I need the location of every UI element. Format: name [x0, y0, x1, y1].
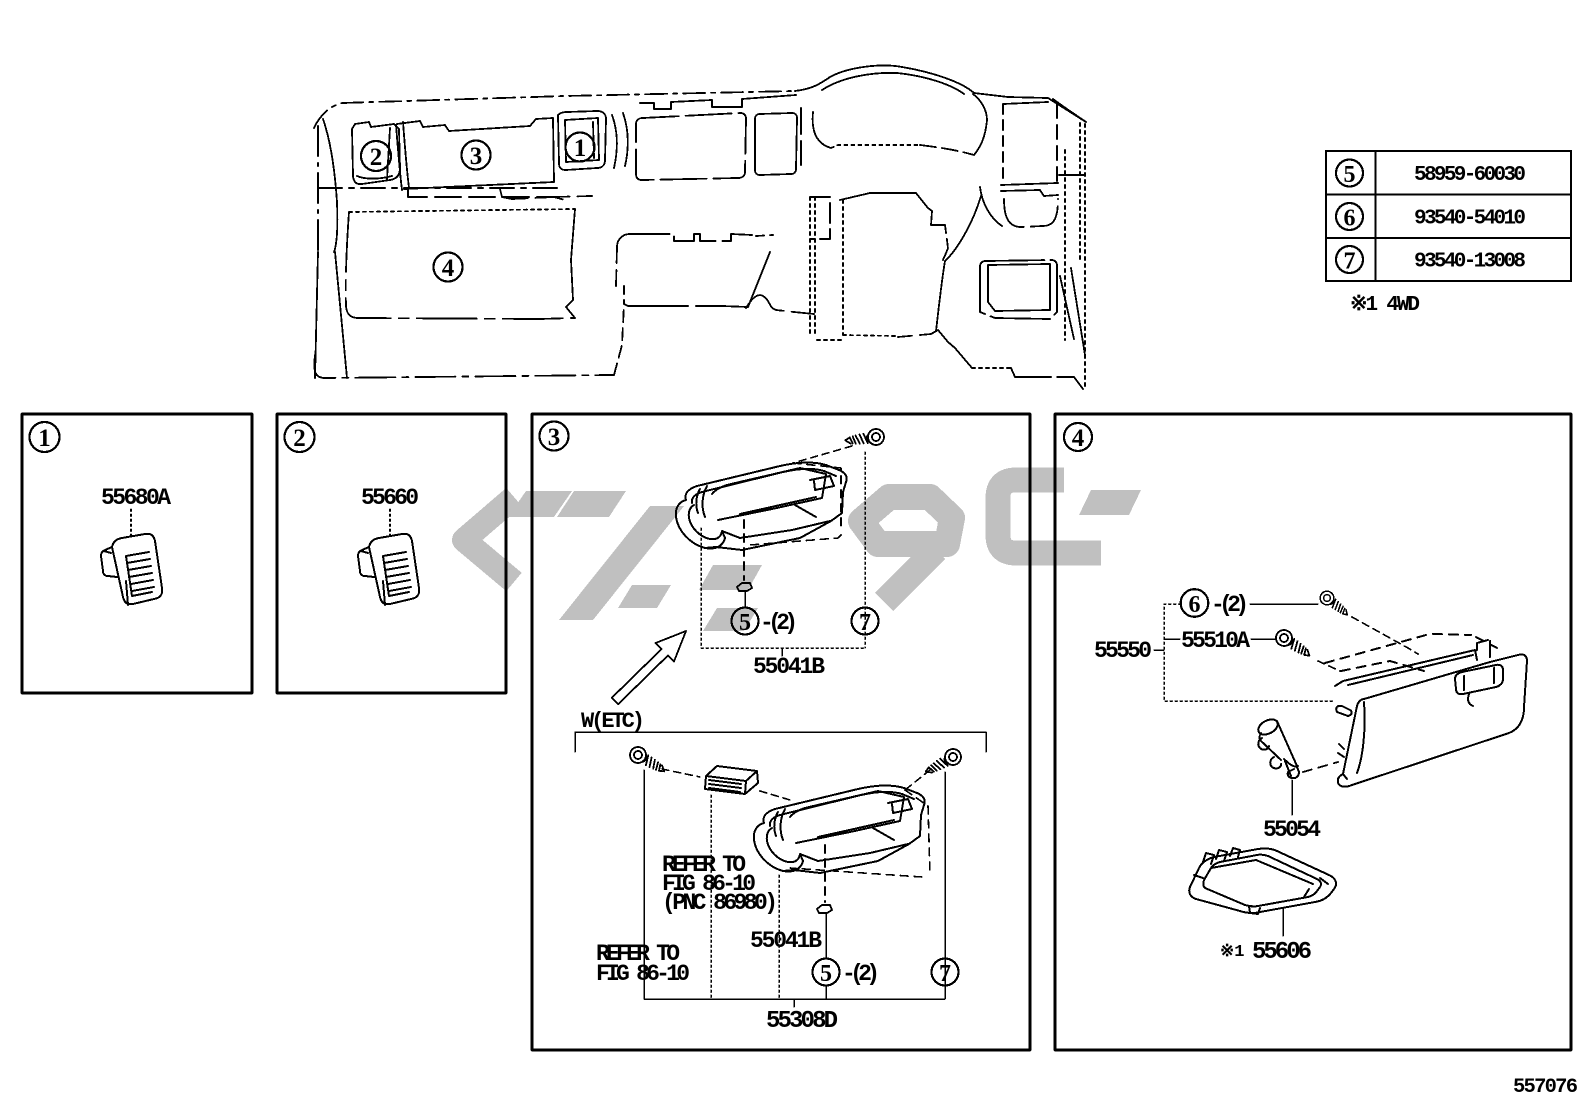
svg-text:-(2): -(2) — [1211, 592, 1249, 618]
svg-text:1: 1 — [38, 425, 51, 452]
svg-text:-(2): -(2) — [842, 961, 880, 987]
svg-text:93540-54010: 93540-54010 — [1414, 208, 1526, 231]
svg-text:55606: 55606 — [1252, 939, 1312, 966]
svg-text:6: 6 — [1189, 592, 1201, 618]
svg-text:55308D: 55308D — [766, 1008, 838, 1035]
svg-text:4: 4 — [442, 255, 455, 282]
svg-text:※1: ※1 — [1220, 943, 1244, 962]
svg-text:-(2): -(2) — [760, 610, 798, 636]
svg-text:557076: 557076 — [1513, 1076, 1578, 1099]
svg-text:3: 3 — [470, 143, 483, 170]
svg-text:(PNC 86980): (PNC 86980) — [662, 890, 778, 916]
svg-text:7: 7 — [939, 961, 951, 987]
svg-text:6: 6 — [1344, 206, 1356, 232]
svg-text:FIG 86-10: FIG 86-10 — [596, 961, 690, 987]
svg-text:5: 5 — [739, 610, 751, 636]
svg-text:55660: 55660 — [361, 485, 419, 511]
svg-text:7: 7 — [1344, 249, 1356, 275]
svg-text:5: 5 — [820, 961, 832, 987]
svg-text:5: 5 — [1344, 162, 1356, 188]
svg-text:2: 2 — [370, 144, 383, 171]
svg-text:W(ETC): W(ETC) — [581, 709, 645, 734]
svg-text:55550: 55550 — [1094, 638, 1152, 664]
svg-text:1: 1 — [574, 135, 587, 162]
svg-text:4: 4 — [1072, 425, 1085, 452]
svg-text:55041B: 55041B — [753, 654, 825, 680]
svg-text:※1 4WD: ※1 4WD — [1350, 293, 1420, 317]
svg-text:55041B: 55041B — [750, 928, 822, 954]
svg-text:93540-13008: 93540-13008 — [1414, 251, 1526, 274]
svg-text:55054: 55054 — [1263, 817, 1321, 843]
svg-text:3: 3 — [548, 424, 561, 451]
svg-text:55680A: 55680A — [101, 485, 171, 511]
svg-text:7: 7 — [859, 610, 871, 636]
svg-text:58959-60030: 58959-60030 — [1414, 164, 1526, 187]
svg-text:2: 2 — [293, 425, 306, 452]
svg-text:55510A: 55510A — [1181, 628, 1250, 654]
